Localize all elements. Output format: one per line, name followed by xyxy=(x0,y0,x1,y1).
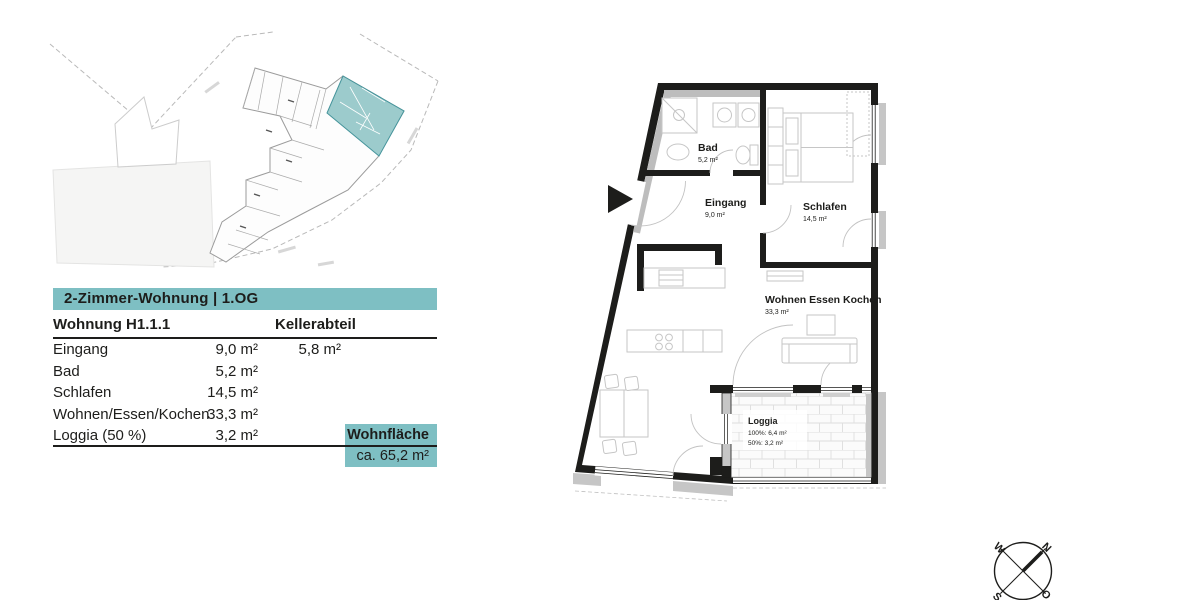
toilet-icon xyxy=(736,145,758,165)
room-label-loggia: Loggia xyxy=(748,416,778,426)
compass-needle-north xyxy=(1023,552,1042,571)
living-area-label: Wohnfläche xyxy=(345,424,437,445)
room-label-wohnen: Wohnen Essen Kochen xyxy=(765,294,882,306)
floor-plan: Bad 5,2 m² Eingang 9,0 m² Schlafen 14,5 … xyxy=(555,72,905,504)
room-area-eingang: 9,0 m² xyxy=(705,212,726,219)
room-label-schlafen: Schlafen xyxy=(803,201,847,213)
sideboard-icon xyxy=(767,271,803,281)
coffee-table-icon xyxy=(807,315,835,335)
kitchen-counter-icon xyxy=(644,268,725,288)
table-row: Bad 5,2 m² xyxy=(53,361,437,383)
room-label-eingang: Eingang xyxy=(705,197,746,209)
table-footer: Wohnfläche ca. 65,2 m² xyxy=(53,447,437,471)
site-plan xyxy=(40,30,460,275)
loggia xyxy=(710,385,871,477)
kitchen-island-icon xyxy=(627,330,722,352)
room-area-bad: 5,2 m² xyxy=(698,157,719,164)
bed-icon xyxy=(783,113,853,182)
compass-east-label: O xyxy=(1038,588,1053,600)
dryer-icon xyxy=(738,103,759,127)
wardrobe-icon xyxy=(768,108,783,184)
room-area: 3,2 m² xyxy=(198,427,258,444)
room-area: 5,2 m² xyxy=(198,363,258,380)
room-area-loggia-50: 50%: 3,2 m² xyxy=(748,440,784,447)
unit-info-table: 2-Zimmer-Wohnung | 1.OG Wohnung H1.1.1 K… xyxy=(53,288,437,471)
room-name: Bad xyxy=(53,363,198,380)
room-area-loggia-100: 100%: 6,4 m² xyxy=(748,430,787,437)
unit-number-label: Wohnung H1.1.1 xyxy=(53,316,258,333)
living-area-value: ca. 65,2 m² xyxy=(345,445,437,466)
room-label-bad: Bad xyxy=(698,142,718,154)
room-area: 33,3 m² xyxy=(198,406,258,423)
table-bottom-rule xyxy=(53,445,437,447)
apartment-flyer-page: 2-Zimmer-Wohnung | 1.OG Wohnung H1.1.1 K… xyxy=(0,0,1200,600)
room-name: Eingang xyxy=(53,341,198,358)
basement-column-label: Kellerabteil xyxy=(258,316,437,333)
room-area-wohnen: 33,3 m² xyxy=(765,309,789,316)
washing-machine-icon xyxy=(713,103,736,127)
washbasin-icon xyxy=(667,144,689,160)
room-name: Schlafen xyxy=(53,384,198,401)
room-area-schlafen: 14,5 m² xyxy=(803,216,827,223)
room-name: Loggia (50 %) xyxy=(53,427,198,444)
basement-area: 5,8 m² xyxy=(275,341,341,358)
compass-west-label: W xyxy=(991,540,1007,556)
unit-title: 2-Zimmer-Wohnung | 1.OG xyxy=(53,288,437,310)
table-column-headers: Wohnung H1.1.1 Kellerabteil xyxy=(53,310,437,339)
table-row: Schlafen 14,5 m² xyxy=(53,382,437,404)
room-area: 9,0 m² xyxy=(198,341,258,358)
room-name: Wohnen/Essen/Kochen xyxy=(53,406,198,423)
table-row: Wohnen/Essen/Kochen 33,3 m² xyxy=(53,404,437,426)
shower-icon xyxy=(662,98,697,133)
sofa-icon xyxy=(782,338,857,363)
compass-rose-icon: N S W O xyxy=(985,533,1065,600)
room-area: 14,5 m² xyxy=(198,384,258,401)
site-plan-adjacent-area xyxy=(53,161,214,267)
dining-set-icon xyxy=(600,374,648,456)
table-row: Eingang 9,0 m² 5,8 m² xyxy=(53,339,437,361)
